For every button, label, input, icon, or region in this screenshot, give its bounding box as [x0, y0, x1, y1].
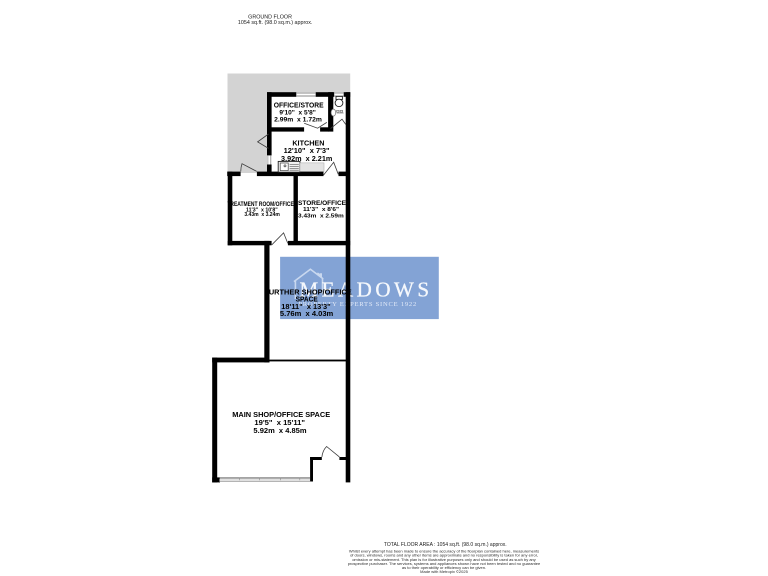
svg-text:1054 sq.ft. (98.0 sq.m.) appro: 1054 sq.ft. (98.0 sq.m.) approx. [238, 20, 313, 26]
svg-text:Made with Metropix ©2025: Made with Metropix ©2025 [420, 569, 468, 574]
svg-text:2.99m x 1.72m: 2.99m x 1.72m [274, 116, 322, 123]
svg-text:STORE/OFFICE: STORE/OFFICE [298, 200, 347, 207]
svg-text:TOTAL FLOOR AREA : 1054 sq.ft.: TOTAL FLOOR AREA : 1054 sq.ft. (98.0 sq.… [384, 542, 507, 548]
svg-text:3.43m x 2.59m: 3.43m x 2.59m [298, 214, 344, 220]
svg-text:5.76m x 4.03m: 5.76m x 4.03m [280, 309, 334, 318]
svg-text:11'3" x 8'6": 11'3" x 8'6" [303, 207, 339, 213]
svg-text:3.92m x 2.21m: 3.92m x 2.21m [281, 154, 333, 163]
svg-text:3.43m x 3.24m: 3.43m x 3.24m [244, 212, 280, 218]
svg-text:OFFICE/STORE: OFFICE/STORE [274, 102, 324, 109]
svg-text:5.92m x 4.85m: 5.92m x 4.85m [253, 426, 307, 435]
